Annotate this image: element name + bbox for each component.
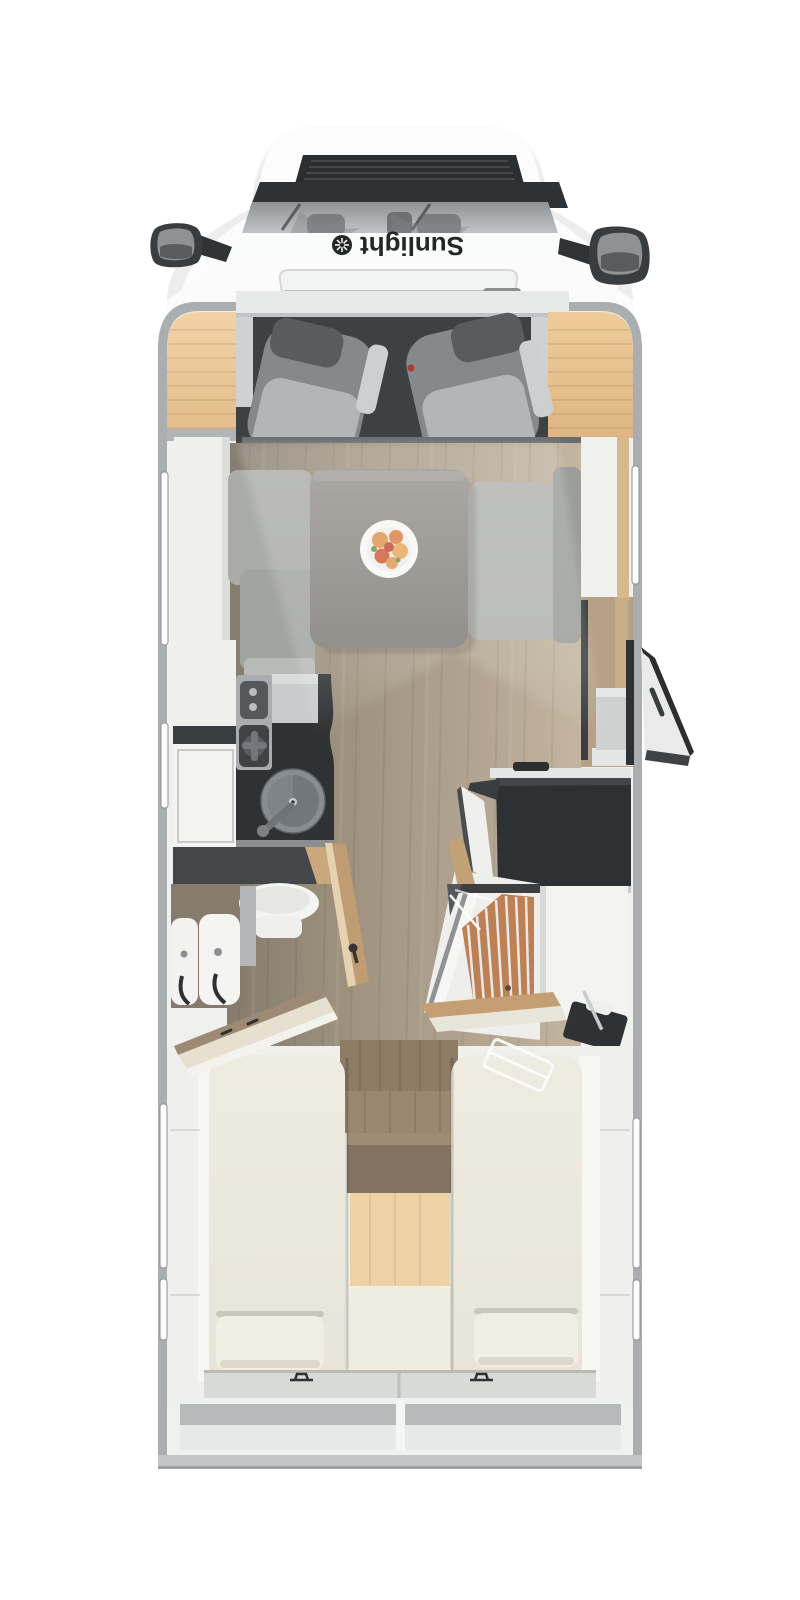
svg-text:Sunlight: Sunlight [360, 231, 464, 261]
